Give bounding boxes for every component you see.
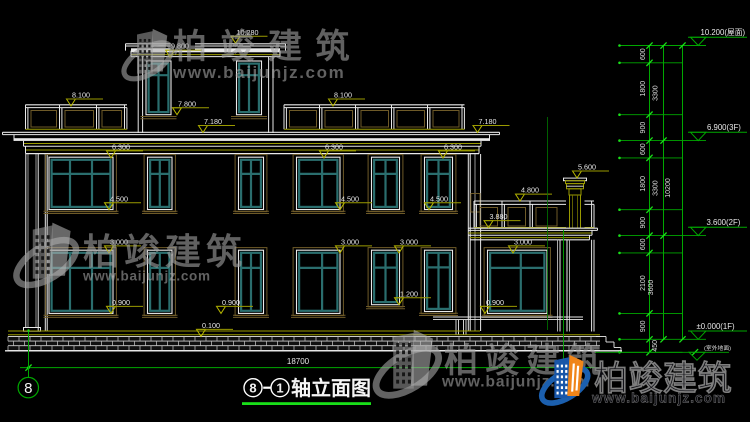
svg-text:1: 1 [276,380,283,395]
svg-text:10200: 10200 [665,178,672,198]
svg-text:6.300: 6.300 [325,143,343,152]
svg-text:1800: 1800 [640,81,647,97]
svg-text:5.600: 5.600 [578,163,596,172]
svg-text:8: 8 [24,380,32,397]
svg-text:900: 900 [640,217,647,229]
svg-text:7.800: 7.800 [178,99,196,108]
svg-text:柏竣建筑: 柏竣建筑 [83,231,247,272]
svg-text:18700: 18700 [287,357,310,366]
svg-text:3300: 3300 [653,85,660,101]
svg-text:0.900: 0.900 [486,298,504,307]
svg-text:3600: 3600 [648,280,655,296]
svg-text:600: 600 [640,143,647,155]
svg-text:3.000: 3.000 [341,238,359,247]
svg-text:600: 600 [640,238,647,250]
svg-text:900: 900 [640,320,647,332]
svg-text:www.baijunjz.com: www.baijunjz.com [591,391,726,406]
svg-text:2100: 2100 [640,275,647,291]
svg-text:7.180: 7.180 [479,117,497,126]
svg-text:www.baijunjz.com: www.baijunjz.com [82,269,211,284]
svg-text:3.600(2F): 3.600(2F) [707,218,741,227]
svg-text:900: 900 [640,122,647,134]
svg-text:8: 8 [249,380,256,395]
svg-text:3.880: 3.880 [490,212,508,221]
svg-text:450: 450 [652,340,659,352]
svg-text:0.100: 0.100 [202,321,220,330]
svg-text:4.500: 4.500 [341,194,359,203]
svg-text:±0.000(1F): ±0.000(1F) [697,322,735,331]
svg-text:10.200(屋面): 10.200(屋面) [701,28,746,37]
svg-text:6.300: 6.300 [112,143,130,152]
svg-text:柏竣建筑: 柏竣建筑 [173,27,363,66]
svg-text:7.180: 7.180 [204,117,222,126]
svg-text:3300: 3300 [653,180,660,196]
svg-text:4.800: 4.800 [521,186,539,195]
svg-text:4.500: 4.500 [430,194,448,203]
svg-text:1.200: 1.200 [400,289,418,298]
svg-text:4.500: 4.500 [110,194,128,203]
svg-text:轴立面图: 轴立面图 [291,376,371,400]
svg-text:8.100: 8.100 [72,91,90,100]
svg-text:6.300: 6.300 [444,143,462,152]
svg-text:3.000: 3.000 [514,238,532,247]
svg-text:0.900: 0.900 [222,298,240,307]
svg-text:0.900: 0.900 [112,298,130,307]
svg-text:3.000: 3.000 [400,238,418,247]
svg-text:6.900(3F): 6.900(3F) [707,123,741,132]
svg-text:1800: 1800 [640,176,647,192]
svg-text:(室外地面): (室外地面) [704,344,731,352]
svg-text:8.100: 8.100 [334,91,352,100]
svg-text:600: 600 [640,48,647,60]
svg-text:www.baijunjz.com: www.baijunjz.com [172,63,345,82]
